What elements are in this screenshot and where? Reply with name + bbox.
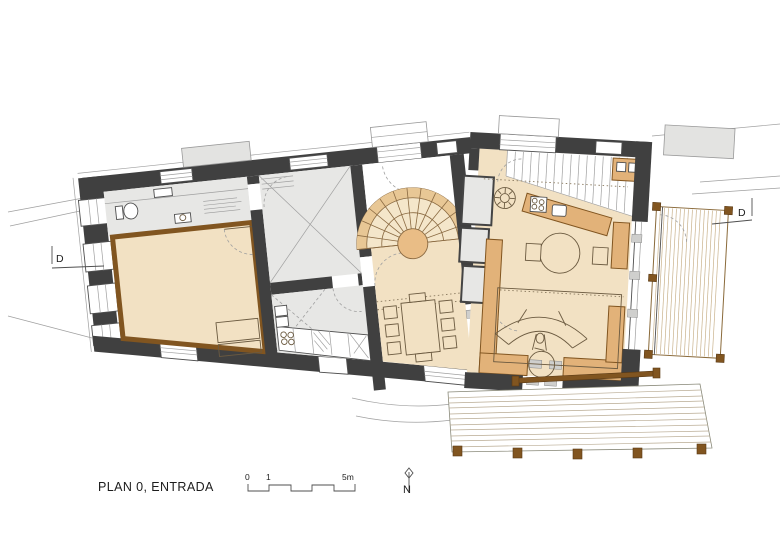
- floor-plan-canvas: D D PLAN 0, ENTRADA 0 1 5m N: [0, 0, 780, 552]
- terrace-foot: [573, 449, 582, 459]
- wood-deck: [644, 202, 733, 362]
- scale-label-5m: 5m: [342, 472, 354, 482]
- hall: [259, 166, 362, 283]
- scale-label-0: 0: [245, 472, 250, 482]
- window: [78, 198, 109, 227]
- north-arrow: N: [403, 468, 413, 496]
- terrace-foot: [633, 448, 642, 458]
- cabinet: [154, 188, 173, 198]
- scale-label-1: 1: [266, 472, 271, 482]
- window: [87, 283, 118, 314]
- chair: [441, 318, 455, 331]
- north-label: N: [403, 484, 411, 496]
- section-label: D: [56, 253, 64, 265]
- chair: [383, 306, 397, 319]
- scale-bar: 0 1 5m: [245, 472, 355, 491]
- building-right-wing: [452, 114, 737, 403]
- floor-plan-page: D D PLAN 0, ENTRADA 0 1 5m N: [0, 0, 780, 552]
- chair: [443, 336, 457, 349]
- sink-icon: [174, 213, 191, 224]
- building-left-wing: [71, 117, 496, 429]
- stove-icon: [530, 196, 547, 212]
- chair: [592, 247, 608, 265]
- chair: [385, 324, 399, 337]
- chair: [525, 243, 541, 261]
- section-label: D: [738, 207, 746, 219]
- porch-canopy: [498, 116, 559, 137]
- terrace-foot: [453, 446, 462, 456]
- terrace-foot: [513, 448, 522, 458]
- sink-icon: [552, 205, 567, 217]
- plan-title: PLAN 0, ENTRADA: [98, 480, 214, 494]
- chair: [387, 342, 401, 355]
- window: [83, 241, 114, 272]
- chair: [439, 300, 453, 313]
- terrace-foot: [697, 444, 706, 454]
- upper-landing: [663, 125, 735, 159]
